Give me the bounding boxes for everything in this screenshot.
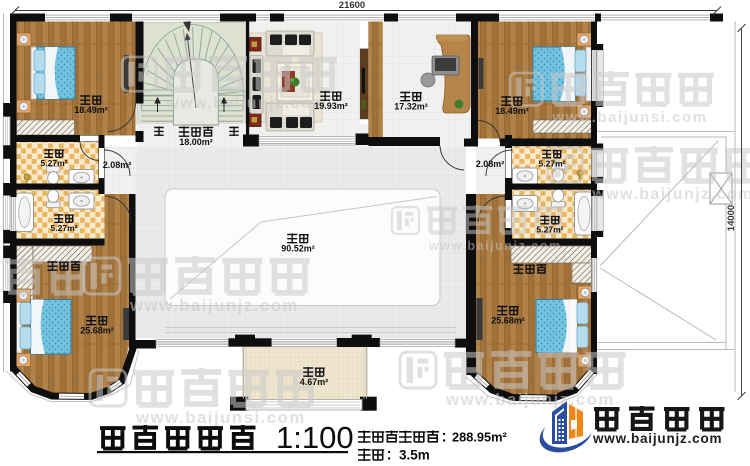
svg-text:19.93m²: 19.93m² [314, 101, 348, 111]
svg-text:21600: 21600 [339, 0, 365, 11]
svg-text:5.27m²: 5.27m² [41, 158, 68, 168]
svg-text:17.32m²: 17.32m² [394, 102, 428, 112]
svg-text:18.00m²: 18.00m² [179, 137, 213, 147]
svg-text:：: ： [386, 448, 399, 462]
svg-text:www.baijunjz.com: www.baijunjz.com [445, 390, 615, 409]
svg-text:www.baijunjz.com: www.baijunjz.com [592, 431, 722, 446]
svg-text:25.68m²: 25.68m² [80, 326, 114, 336]
svg-text:5.27m²: 5.27m² [537, 225, 564, 235]
svg-text:2.08m²: 2.08m² [476, 159, 505, 169]
svg-text:3.5m: 3.5m [399, 448, 430, 463]
svg-text:14000: 14000 [726, 205, 737, 231]
svg-text:www.baijunjz.com: www.baijunjz.com [129, 296, 299, 315]
svg-text:288.95m²: 288.95m² [452, 430, 507, 445]
svg-text:90.52m²: 90.52m² [281, 244, 315, 254]
svg-text:25.68m²: 25.68m² [491, 316, 525, 326]
svg-text:www.baijunjz.com: www.baijunjz.com [428, 239, 562, 253]
svg-text:18.49m²: 18.49m² [495, 106, 529, 116]
svg-text:5.27m²: 5.27m² [539, 159, 566, 169]
svg-text:www.baijunsi.com: www.baijunsi.com [551, 109, 707, 126]
svg-text:www.baijunjz.com: www.baijunjz.com [165, 95, 328, 112]
svg-text:5.27m²: 5.27m² [51, 223, 78, 233]
svg-text:4.67m²: 4.67m² [300, 377, 329, 387]
svg-text:18.49m²: 18.49m² [74, 105, 108, 115]
svg-text:2.08m²: 2.08m² [103, 160, 132, 170]
svg-text:1:100: 1:100 [276, 420, 354, 455]
svg-text:www.baijunjz.com: www.baijunjz.com [591, 186, 750, 203]
